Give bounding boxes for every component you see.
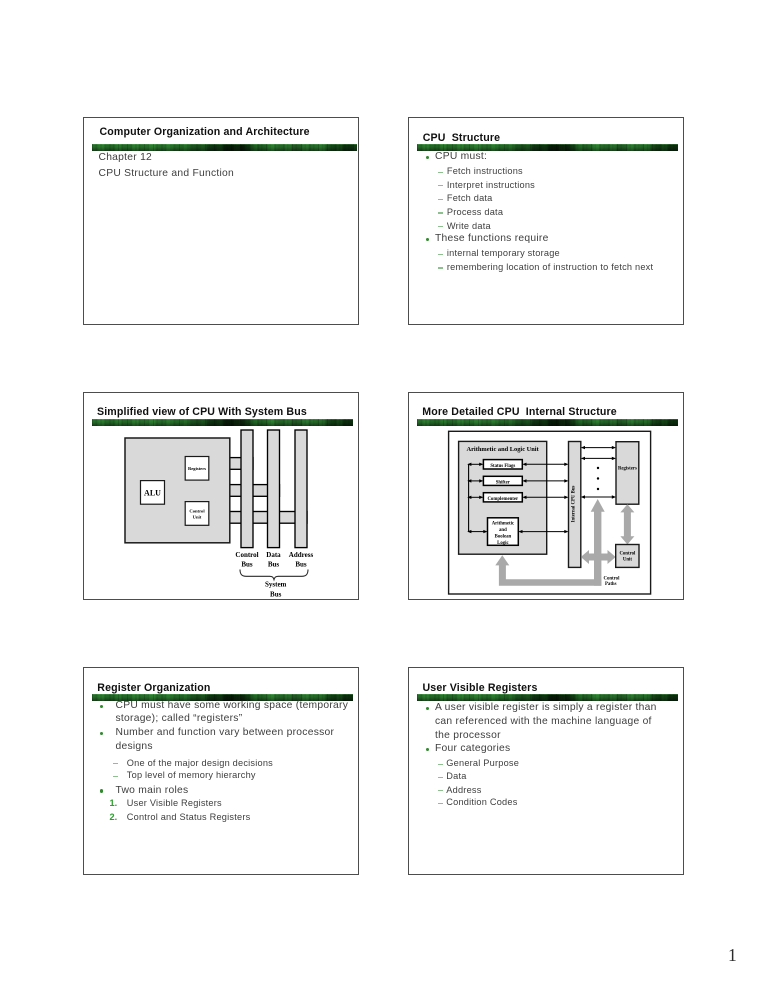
svg-text:Shifter: Shifter <box>496 481 511 486</box>
svg-text:Logic: Logic <box>497 541 509 546</box>
svg-text:System: System <box>265 580 287 588</box>
svg-text:Arithmetic: Arithmetic <box>492 522 515 527</box>
svg-text:Control: Control <box>189 509 205 514</box>
svg-text:Bus: Bus <box>241 560 253 568</box>
svg-text:ALU: ALU <box>144 489 161 498</box>
svg-text:Unit: Unit <box>623 558 632 563</box>
svg-text:Address: Address <box>289 551 314 559</box>
svg-text:Complementer: Complementer <box>487 497 519 502</box>
svg-text:Registers: Registers <box>618 467 637 472</box>
svg-text:and: and <box>499 528 507 533</box>
svg-text:Internal CPU Bus: Internal CPU Bus <box>572 485 577 522</box>
svg-text:Registers: Registers <box>188 466 206 471</box>
svg-text:Control: Control <box>619 551 636 556</box>
svg-text:Control: Control <box>235 551 258 559</box>
svg-text:Unit: Unit <box>193 515 202 520</box>
svg-text:Bus: Bus <box>295 560 307 568</box>
svg-text:Bus: Bus <box>268 560 280 568</box>
svg-text:Paths: Paths <box>605 582 617 587</box>
svg-text:Arithmetic and Logic Unit: Arithmetic and Logic Unit <box>466 446 539 453</box>
svg-text:Control: Control <box>604 577 621 582</box>
svg-text:Status Flags: Status Flags <box>490 464 515 469</box>
svg-text:Boolean: Boolean <box>495 535 512 540</box>
svg-text:Bus: Bus <box>270 590 282 598</box>
svg-text:Data: Data <box>266 551 281 559</box>
